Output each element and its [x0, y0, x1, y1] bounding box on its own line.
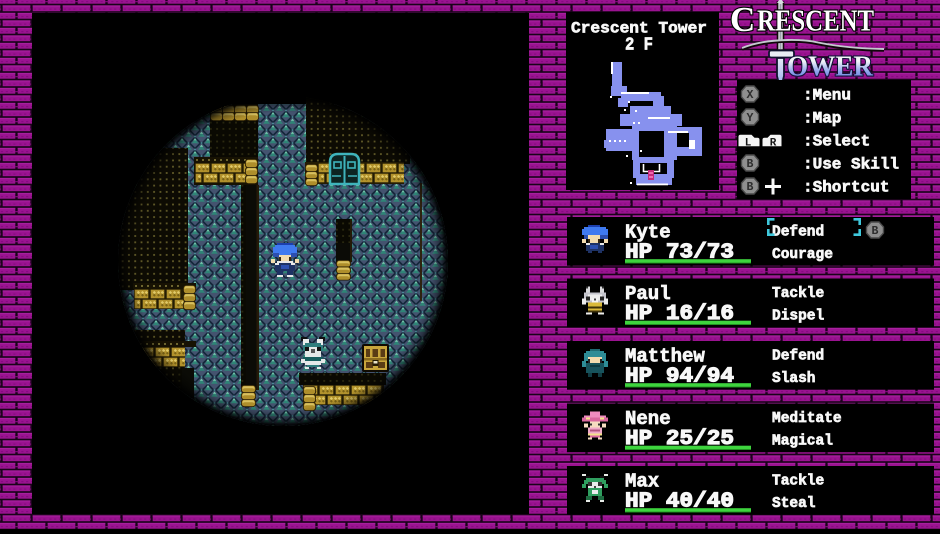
svg-text:RESCENT: RESCENT [757, 4, 874, 38]
svg-text:OWER: OWER [787, 52, 873, 83]
svg-text:Paul: Paul [625, 283, 671, 305]
svg-text:Courage: Courage [772, 247, 833, 263]
svg-text:Meditate: Meditate [772, 411, 842, 427]
svg-text:2 F: 2 F [625, 36, 653, 56]
svg-text:B: B [747, 181, 754, 194]
svg-text:Y: Y [747, 112, 754, 125]
svg-text:R: R [770, 138, 777, 150]
svg-text:Defend: Defend [772, 349, 824, 365]
svg-text:Nene: Nene [625, 408, 671, 430]
svg-text:X: X [747, 89, 754, 102]
svg-text:B: B [872, 225, 879, 238]
svg-text::Select: :Select [803, 133, 870, 151]
svg-text:Kyte: Kyte [625, 222, 671, 244]
svg-text:C: C [730, 0, 755, 39]
svg-text:Slash: Slash [772, 371, 816, 387]
svg-text:Matthew: Matthew [625, 346, 705, 368]
svg-text:Tackle: Tackle [772, 286, 824, 302]
svg-text::Map: :Map [803, 110, 841, 128]
svg-text:Max: Max [625, 471, 659, 493]
svg-text:Steal: Steal [772, 496, 816, 512]
svg-text::Menu: :Menu [803, 87, 851, 105]
svg-text::Shortcut: :Shortcut [803, 179, 889, 197]
svg-text:Tackle: Tackle [772, 474, 824, 490]
svg-text:Magical: Magical [772, 433, 833, 449]
svg-text:Defend: Defend [772, 225, 824, 241]
svg-text:B: B [747, 158, 754, 171]
svg-text::Use Skill: :Use Skill [803, 156, 899, 174]
svg-text:Dispel: Dispel [772, 308, 825, 324]
svg-text:L: L [745, 138, 752, 150]
